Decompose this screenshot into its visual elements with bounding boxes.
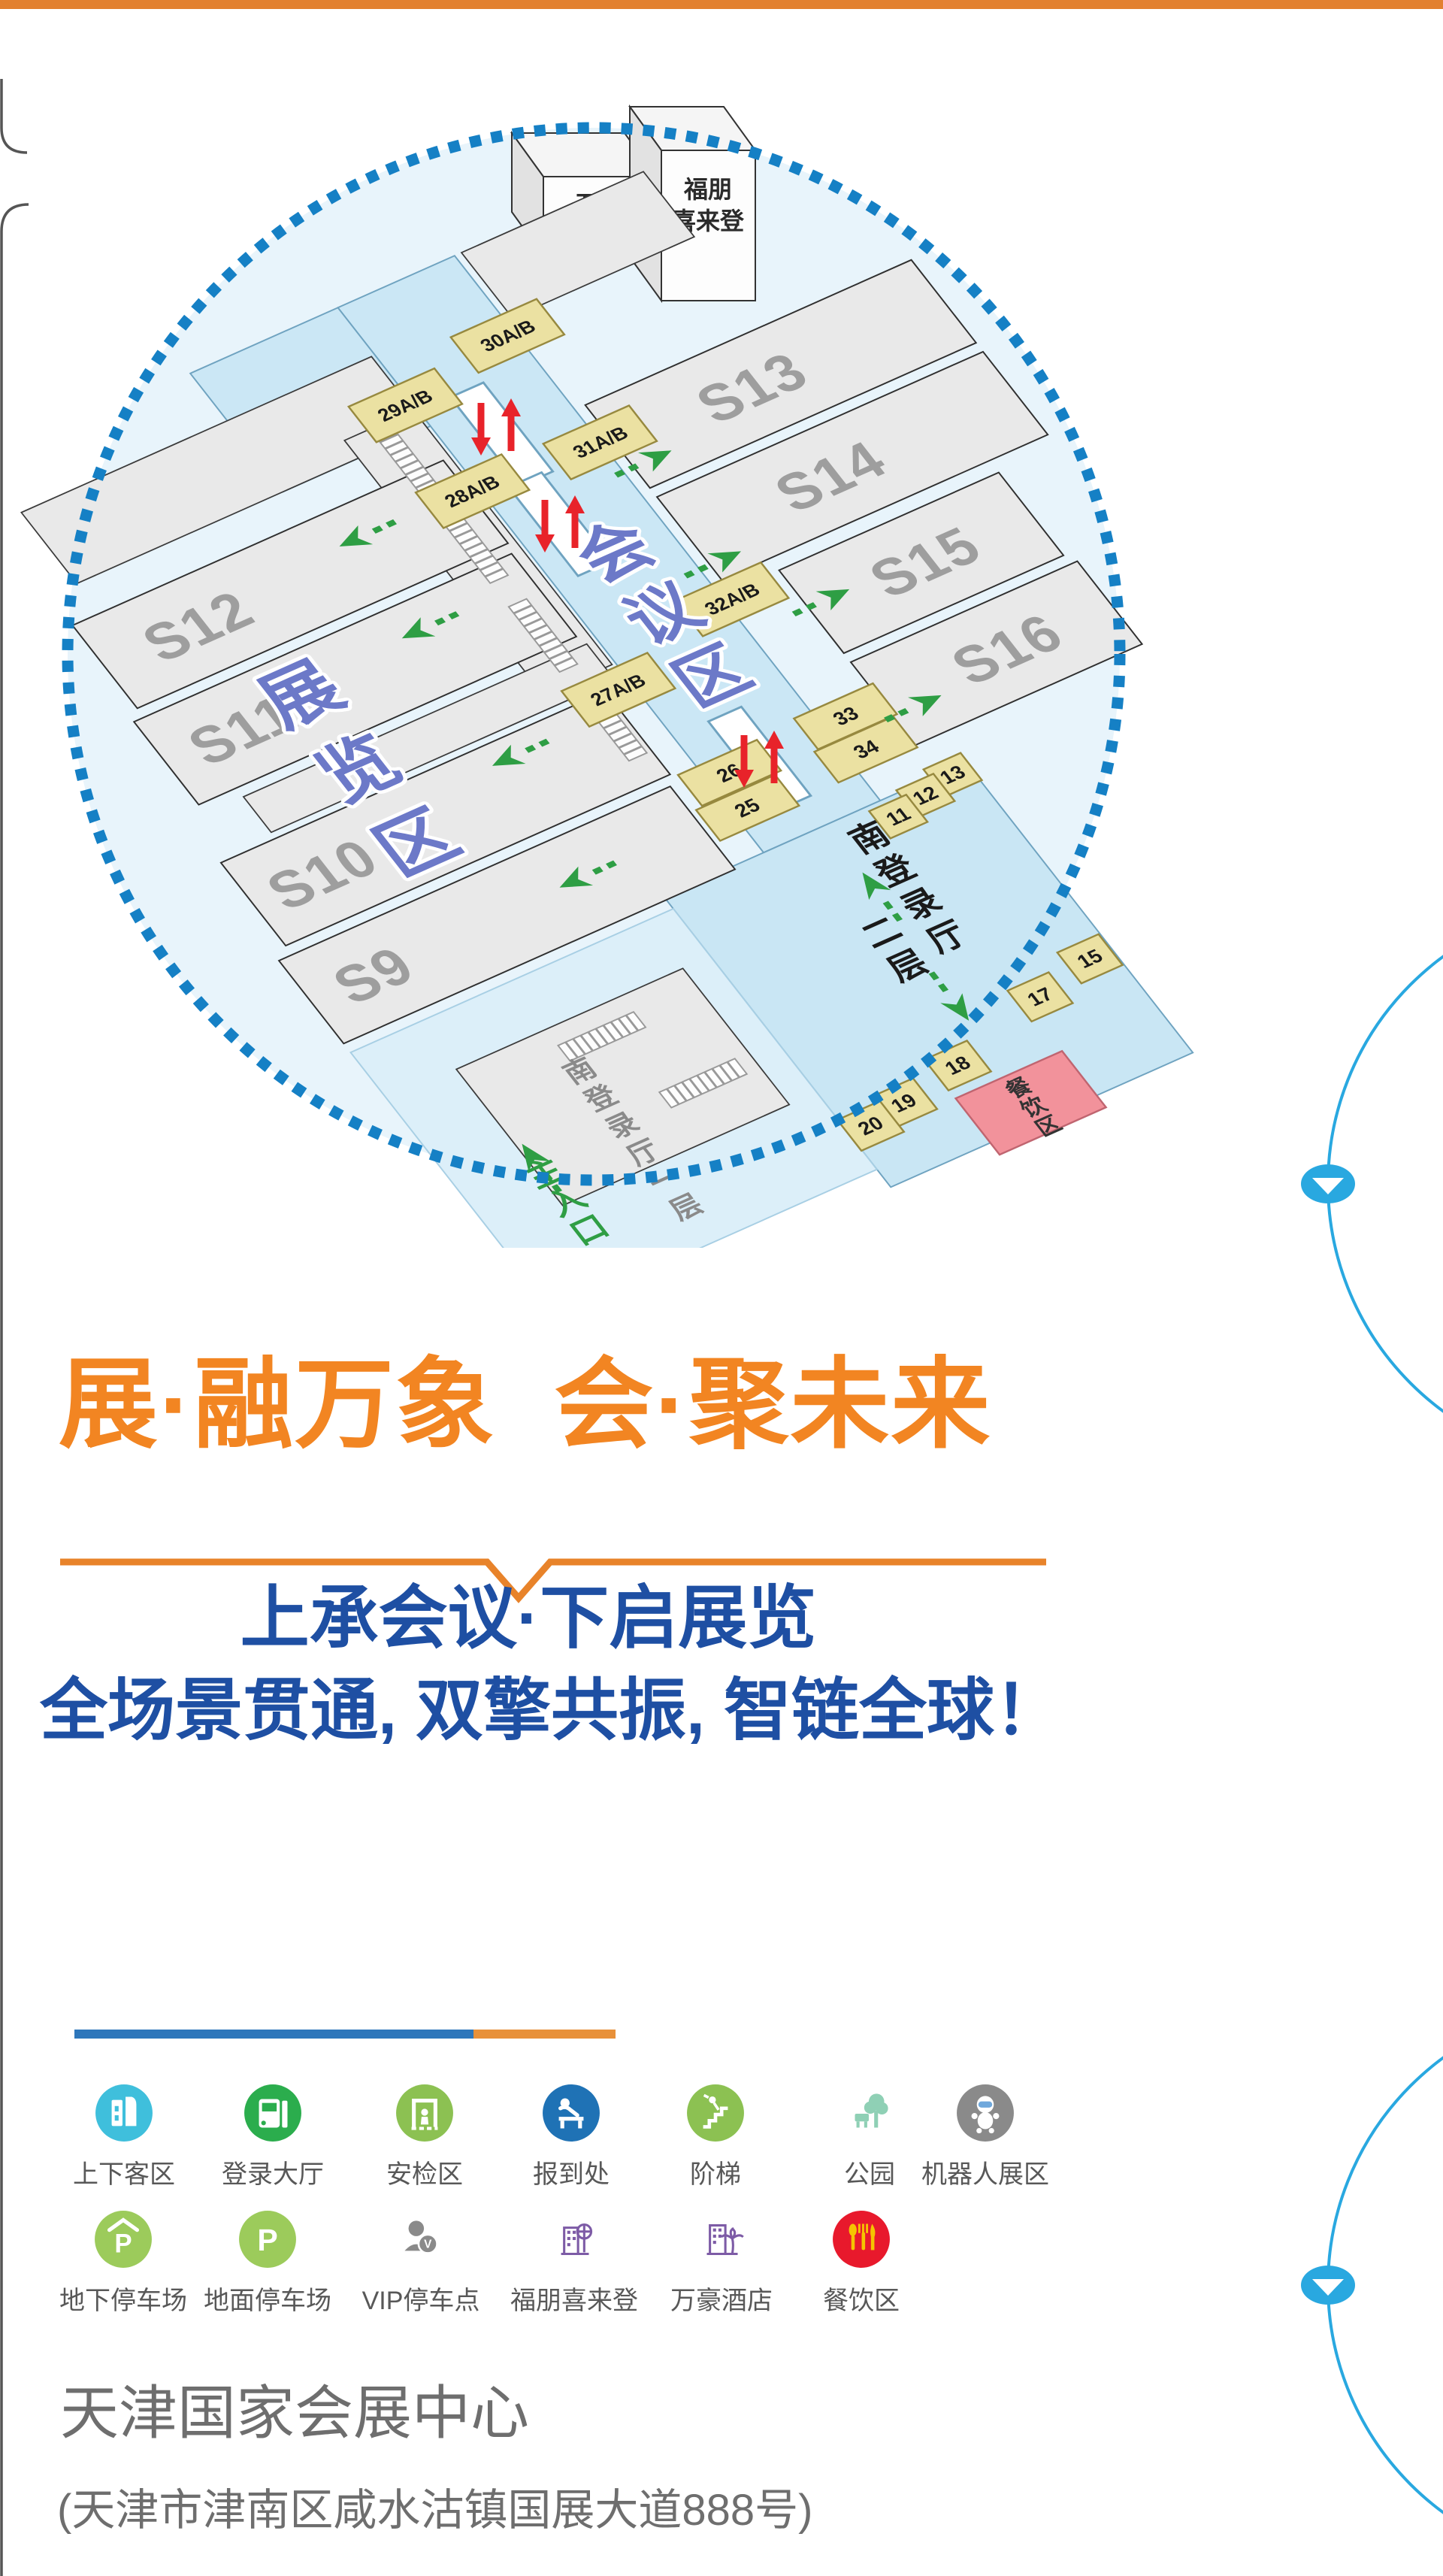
legend-item-stairs: 阶梯	[640, 2083, 791, 2190]
legend-label: 上下客区	[49, 2154, 199, 2190]
legend-item-dining: 餐饮区	[786, 2209, 936, 2317]
legend-item-check-in: 报到处	[496, 2083, 646, 2190]
legend-label: 地面停车场	[192, 2280, 343, 2317]
legend-item-robot-zone: 机器人展区	[910, 2083, 1060, 2190]
legend-label: 报到处	[496, 2154, 646, 2190]
venue-name: 天津国家会展中心	[60, 2366, 529, 2450]
venue-address: (天津市津南区咸水沽镇国展大道888号)	[57, 2475, 812, 2538]
pickup-dropoff-icon	[94, 2083, 154, 2143]
stairs-icon	[685, 2083, 746, 2143]
legend-label: 地下停车场	[48, 2280, 198, 2317]
legend-item-underground-parking: P 地下停车场	[48, 2209, 198, 2317]
legend-item-ground-parking: P 地面停车场	[192, 2209, 343, 2317]
login-hall-icon	[243, 2083, 303, 2143]
legend-label: 福朋喜来登	[499, 2280, 649, 2317]
subtitle-line1: 上承会议·下启展览	[40, 1576, 1017, 1662]
underground-parking-icon: P	[93, 2209, 153, 2269]
legend-item-security-check: 安检区	[349, 2083, 500, 2190]
legend-label: 阶梯	[640, 2154, 791, 2190]
page-title: 展·融万象 会·聚未来	[59, 1324, 1186, 1468]
marriott-hotel-icon	[691, 2209, 752, 2269]
security-check-icon	[395, 2083, 455, 2143]
svg-text:P: P	[114, 2229, 132, 2259]
legend-label: 安检区	[349, 2154, 500, 2190]
legend-label: VIP停车点	[346, 2280, 496, 2317]
legend-item-pickup-dropoff: 上下客区	[49, 2083, 199, 2190]
legend-label: 万豪酒店	[646, 2280, 797, 2317]
legend-item-vip-parking: V VIP停车点	[346, 2209, 496, 2317]
svg-text:V: V	[424, 2238, 432, 2251]
park-icon	[839, 2083, 900, 2143]
four-points-hotel-icon	[544, 2209, 604, 2269]
legend-divider-bar	[74, 2030, 616, 2039]
legend-divider-blue	[74, 2030, 473, 2039]
vip-parking-icon: V	[391, 2209, 451, 2269]
legend-item-login-hall: 登录大厅	[198, 2083, 348, 2190]
check-in-icon	[541, 2083, 601, 2143]
venue-map: 万豪 酒店 福朋 喜来登 S12 S11 S10 S9 S13 S14 S15 …	[0, 0, 1443, 1248]
robot-zone-icon	[955, 2083, 1015, 2143]
legend-label: 餐饮区	[786, 2280, 936, 2317]
subtitle-block: 上承会议·下启展览 全场景贯通, 双擎共振, 智链全球！	[40, 1576, 1017, 1760]
legend-item-marriott-hotel: 万豪酒店	[646, 2209, 797, 2317]
ground-parking-icon: P	[237, 2209, 298, 2269]
dining-icon	[831, 2209, 891, 2269]
subtitle-line2: 全场景贯通, 双擎共振, 智链全球！	[40, 1662, 1017, 1760]
legend-label: 机器人展区	[910, 2154, 1060, 2190]
svg-text:P: P	[257, 2223, 277, 2257]
hotel-four-points-label-1: 福朋	[683, 176, 732, 203]
legend-item-four-points-hotel: 福朋喜来登	[499, 2209, 649, 2317]
legend-divider-orange	[473, 2030, 616, 2039]
legend-label: 登录大厅	[198, 2154, 348, 2190]
